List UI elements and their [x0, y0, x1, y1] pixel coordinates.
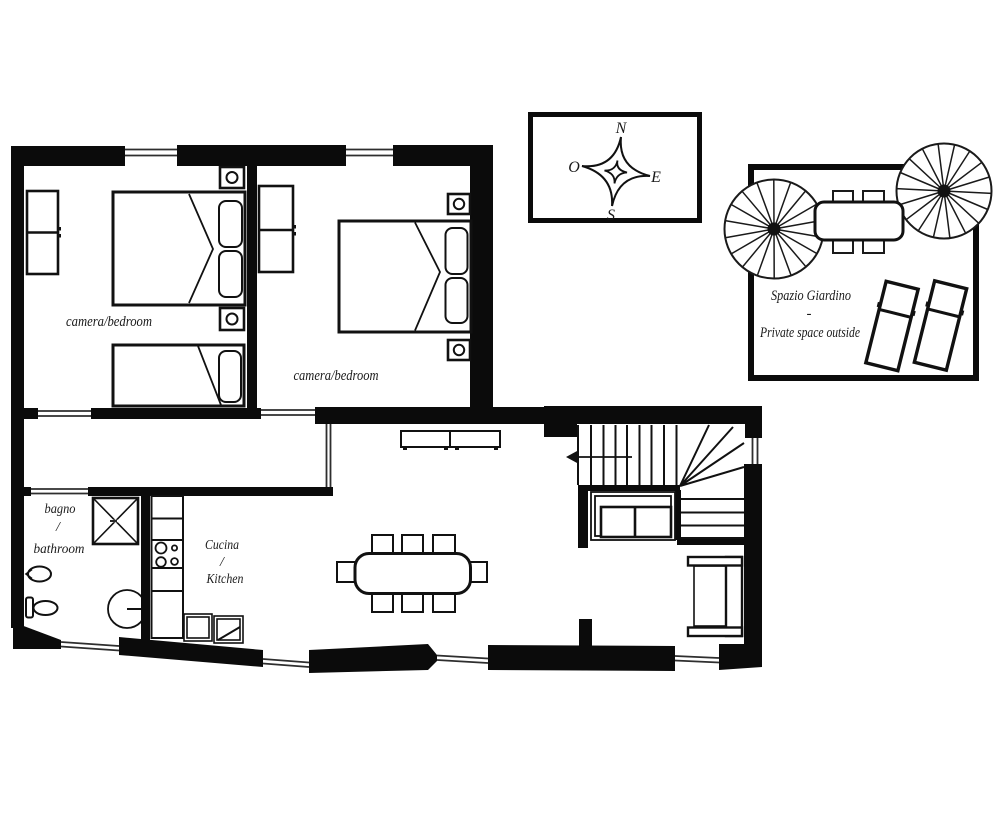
- svg-text:Private space outside: Private space outside: [759, 325, 860, 341]
- svg-text:bagno: bagno: [45, 502, 76, 517]
- svg-text:O: O: [568, 159, 580, 176]
- svg-text:Kitchen: Kitchen: [206, 572, 244, 587]
- svg-text:-: -: [807, 306, 812, 322]
- svg-text:S: S: [607, 207, 615, 224]
- svg-text:Spazio Giardino: Spazio Giardino: [771, 288, 851, 304]
- svg-text:N: N: [615, 120, 628, 137]
- svg-text:E: E: [650, 169, 661, 186]
- svg-text:camera/bedroom: camera/bedroom: [294, 368, 379, 384]
- svg-text:Cucina: Cucina: [205, 538, 239, 553]
- svg-text:camera/bedroom: camera/bedroom: [66, 314, 152, 330]
- svg-text:bathroom: bathroom: [34, 542, 85, 557]
